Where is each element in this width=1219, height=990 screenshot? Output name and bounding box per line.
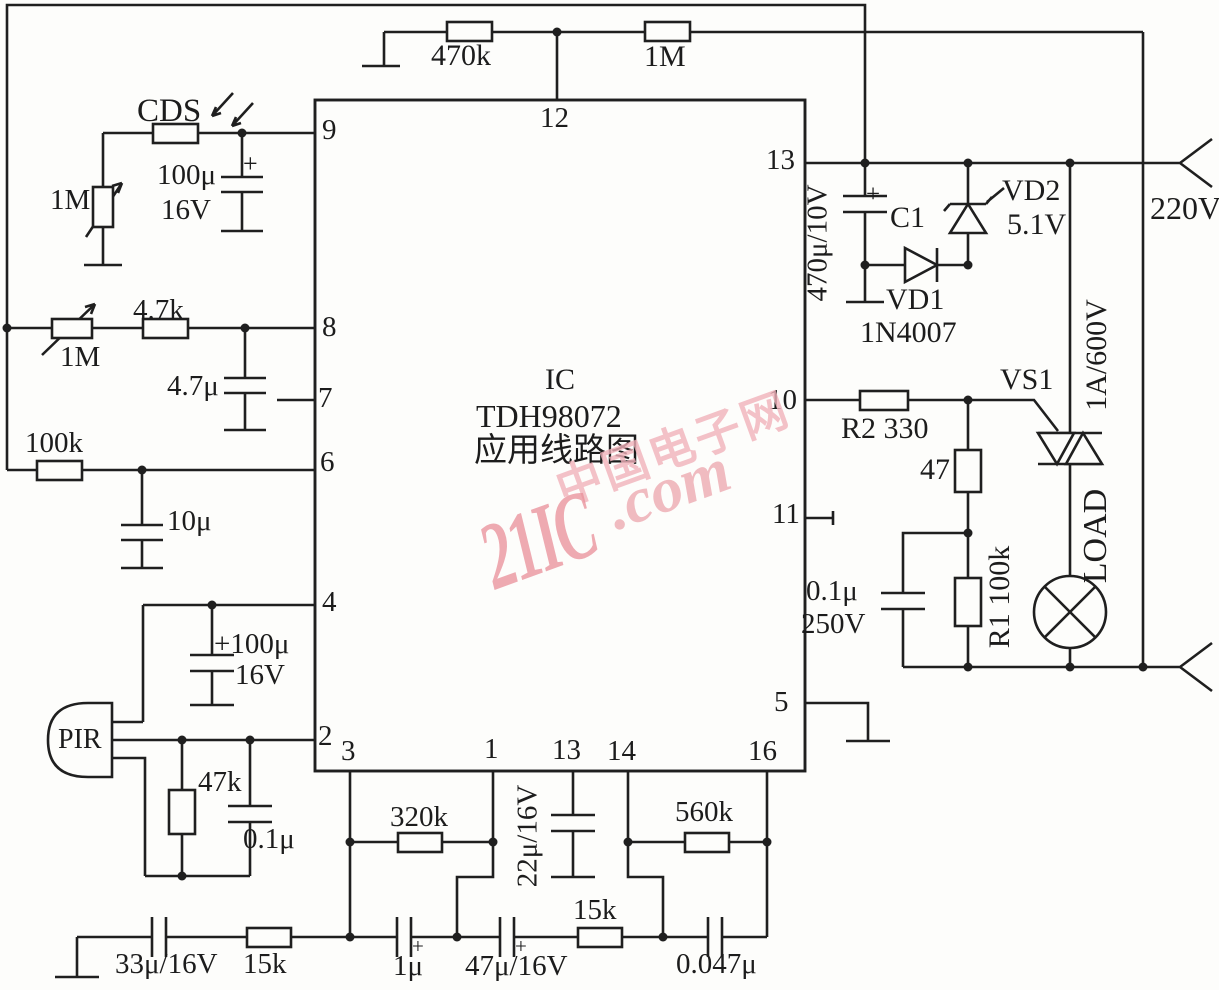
res-560k-body <box>685 833 729 852</box>
pin-6: 6 <box>320 448 335 477</box>
res-100k-left-label: 100k <box>25 429 83 458</box>
res-47-body <box>955 450 981 492</box>
res-4k7-label: 4.7k <box>133 296 184 325</box>
pin-3: 3 <box>341 737 356 766</box>
diode-vd1-symbol <box>905 248 937 282</box>
res-r2-body <box>860 391 908 410</box>
res-1m-top-body <box>645 22 690 41</box>
cap-0047u-label: 0.047μ <box>676 950 757 979</box>
cap-0u1-pir-label: 0.1μ <box>243 825 295 854</box>
cap-10u <box>121 470 163 568</box>
res-47-label: 47 <box>920 455 950 485</box>
cap-1u-plus: + <box>412 936 424 957</box>
schematic-page: 中国电子网 .com 21IC <box>0 0 1219 990</box>
ground-bus <box>55 937 99 977</box>
pin-13-right: 13 <box>766 146 795 175</box>
pin-12: 12 <box>540 104 569 133</box>
load-label: LOAD <box>1079 489 1113 583</box>
cap-10u-label: 10μ <box>167 507 212 536</box>
cap-c1-label: C1 <box>890 203 925 233</box>
pin-11: 11 <box>772 500 800 529</box>
pot-1m-mid-label: 1M <box>60 343 100 372</box>
res-1m-top-label: 1M <box>644 42 686 72</box>
res-r2-label: R2 330 <box>841 414 929 444</box>
pir-label: PIR <box>58 726 102 754</box>
res-r1-label: R1 100k <box>985 546 1015 649</box>
pin-4: 4 <box>322 588 337 617</box>
cap-snubber-voltage: 250V <box>801 610 865 639</box>
vd2-voltage-label: 5.1V <box>1007 210 1066 240</box>
cap-47u-plus: + <box>515 936 527 957</box>
cap-100u-bot-label: +100μ <box>214 630 289 659</box>
res-470k-label: 470k <box>431 41 491 71</box>
cds-label: CDS <box>137 95 201 128</box>
pot-1m-left-body <box>93 187 113 227</box>
res-47k-body <box>169 790 195 834</box>
pin-7: 7 <box>318 384 333 413</box>
cap-470u-label: 470μ/10V <box>804 184 833 301</box>
res-15k-mid-body <box>578 928 622 947</box>
pin-14: 14 <box>607 737 636 766</box>
vs1-rating-label: 1A/600V <box>1082 299 1112 411</box>
vs1-label: VS1 <box>1000 365 1053 395</box>
cap-33u-label: 33μ/16V <box>115 950 218 979</box>
zener-vd2-symbol <box>950 204 986 233</box>
res-320k-label: 320k <box>390 803 448 832</box>
res-15k-mid-label: 15k <box>573 896 617 925</box>
res-15k-left-label: 15k <box>243 950 287 979</box>
cap-0u1-pir <box>228 740 272 876</box>
pin-16: 16 <box>748 737 777 766</box>
pot-1m-left-label: 1M <box>50 186 90 215</box>
pin-13-bottom: 13 <box>552 736 581 765</box>
cap-100u-bot-voltage: 16V <box>235 661 285 690</box>
pin-1: 1 <box>484 735 499 764</box>
cap-snubber-label: 0.1μ <box>806 577 858 606</box>
res-47k-label: 47k <box>198 768 242 797</box>
res-320k-body <box>398 833 442 852</box>
wire-bottom-mains <box>903 643 1212 691</box>
res-15k-left-body <box>247 928 291 947</box>
cap-4u7 <box>224 328 266 430</box>
res-560k-label: 560k <box>675 798 733 827</box>
cap-100u-top <box>221 133 263 231</box>
wire-pin11-stub <box>805 511 833 525</box>
pin-5: 5 <box>774 688 789 717</box>
pin-2: 2 <box>318 722 333 751</box>
pot-1m-mid-body <box>52 319 92 338</box>
cap-470u <box>843 163 887 302</box>
vd1-part-label: 1N4007 <box>860 318 957 348</box>
cap-470u-plus: + <box>866 182 880 207</box>
cap-22u <box>551 771 595 877</box>
ic-part-number: TDH98072 <box>476 400 622 432</box>
cap-100u-top-voltage: 16V <box>161 196 211 225</box>
cap-100u-top-plus: + <box>243 151 258 177</box>
res-r1-body <box>955 578 981 626</box>
vd1-label: VD1 <box>886 285 944 315</box>
pin-9: 9 <box>322 116 337 145</box>
cds-light-arrows <box>212 93 253 126</box>
vd2-label: VD2 <box>1002 176 1060 206</box>
res-100k-left-body <box>37 461 82 480</box>
ic-label: IC <box>545 365 575 395</box>
cap-22u-label: 22μ/16V <box>514 785 543 888</box>
wire-pin14 <box>628 771 663 937</box>
wire-pin5 <box>805 703 890 741</box>
cap-100u-top-label: 100μ <box>157 161 216 190</box>
pin-8: 8 <box>322 313 337 342</box>
cap-4u7-label: 4.7μ <box>167 372 219 401</box>
wire-pin1 <box>457 771 493 937</box>
triac-gate-wire <box>968 400 1058 431</box>
mains-voltage-label: 220V <box>1150 192 1219 224</box>
